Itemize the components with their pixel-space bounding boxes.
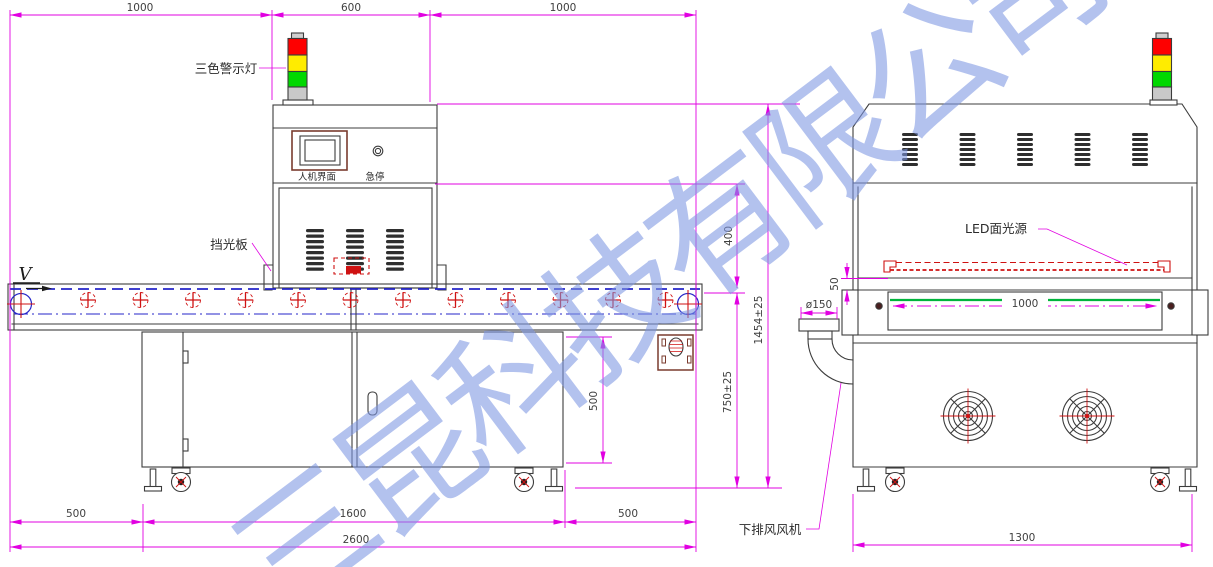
dim-top-right: 1000: [550, 2, 577, 14]
caster-wheel: [886, 468, 905, 492]
view-direction-marker: V: [13, 264, 52, 291]
dim-led-gap: 50: [829, 277, 841, 290]
exhaust-fan-grille-icon: [941, 389, 996, 444]
roller-marker: [238, 293, 253, 308]
dim-duct-diameter: ø150: [806, 299, 832, 311]
tower-base: [283, 100, 313, 105]
machine-drawing: 人机界面 急停: [0, 0, 1213, 567]
roller-marker: [448, 293, 463, 308]
leveling-foot: [1180, 469, 1197, 491]
led-source-label: LED面光源: [965, 221, 1027, 236]
hmi-label: 人机界面: [298, 171, 336, 183]
door-hinge: [183, 439, 188, 451]
dim-overall-width: 1300: [1009, 532, 1036, 544]
vent-louver: [1075, 133, 1091, 166]
exhaust-fan-grille-icon: [1060, 389, 1115, 444]
roller-marker: [81, 293, 96, 308]
cad-drawing-canvas: 人机界面 急停: [0, 0, 1213, 567]
dim-belt-height: 750±25: [722, 371, 734, 413]
dim-top-mid: 600: [341, 2, 361, 14]
vent-louver: [306, 229, 324, 271]
vent-louver: [1017, 133, 1033, 166]
vent-louver: [346, 229, 364, 271]
exhaust-fan-label: 下排风风机: [739, 522, 802, 537]
roller-marker: [343, 293, 358, 308]
view-direction-label: V: [19, 264, 34, 285]
light-shield-right: [438, 265, 446, 290]
estop-label: 急停: [365, 171, 385, 183]
vent-louver: [386, 229, 404, 271]
caster-wheel: [172, 468, 191, 492]
dim-bottom-right: 500: [618, 508, 638, 520]
direction-arrow-icon: [42, 286, 52, 291]
tower-base: [1150, 100, 1177, 105]
roller-marker: [396, 293, 411, 308]
lamp-marker: [346, 266, 361, 274]
caster-wheel: [1151, 468, 1170, 492]
tower-light-icon: [288, 33, 307, 100]
light-shield-label: 挡光板: [210, 237, 248, 252]
light-shield-left: [264, 265, 272, 290]
led-light-source: [858, 261, 1192, 278]
tower-light-icon: [1153, 33, 1172, 100]
leveling-foot: [546, 469, 563, 491]
dim-bottom-left: 500: [66, 508, 86, 520]
roller-marker: [133, 293, 148, 308]
dim-top-left: 1000: [127, 2, 154, 14]
leveling-foot: [145, 469, 162, 491]
bolt: [1168, 303, 1174, 309]
dim-belt-width: 1000: [1012, 298, 1039, 310]
leveling-foot: [858, 469, 875, 491]
warning-light-label: 三色警示灯: [195, 61, 258, 76]
roller-marker: [291, 293, 306, 308]
roller-marker: [186, 293, 201, 308]
bolt: [876, 303, 882, 309]
door-hinge: [183, 351, 188, 363]
emergency-stop-button[interactable]: [373, 146, 383, 156]
machine-head: 人机界面 急停: [264, 33, 446, 290]
vent-louver: [1132, 133, 1148, 166]
